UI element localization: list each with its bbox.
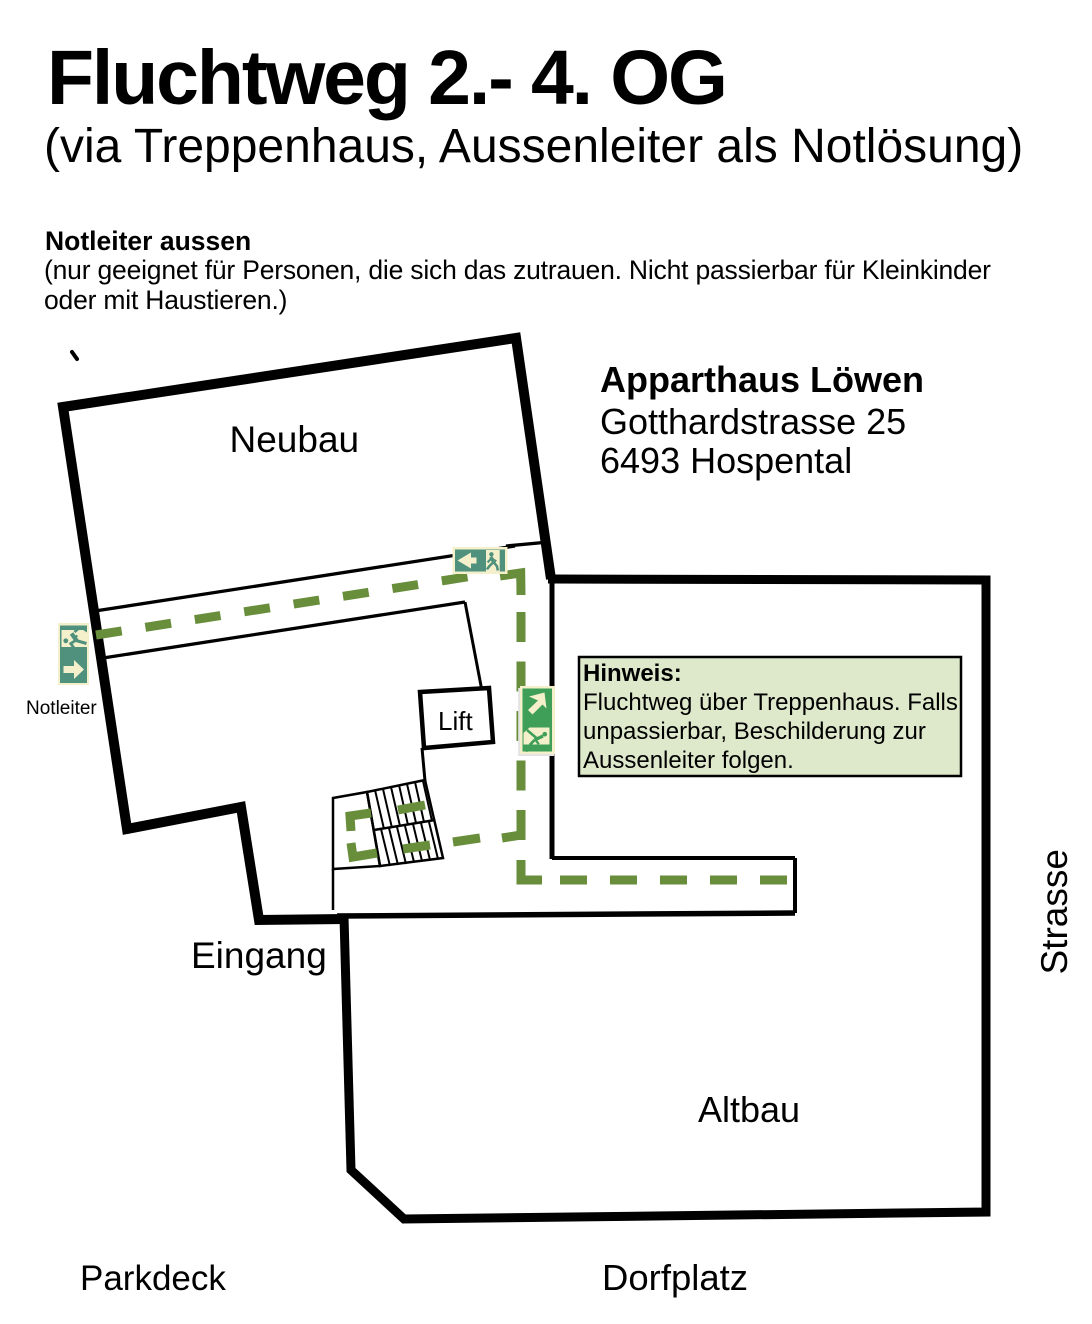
svg-text:Lift: Lift bbox=[438, 706, 473, 736]
svg-text:Notleiter: Notleiter bbox=[26, 698, 97, 719]
svg-text:Hinweis:: Hinweis: bbox=[583, 660, 682, 687]
svg-text:Altbau: Altbau bbox=[698, 1089, 800, 1130]
svg-text:Neubau: Neubau bbox=[230, 419, 360, 460]
svg-text:unpassierbar, Beschilderung zu: unpassierbar, Beschilderung zur bbox=[583, 718, 926, 745]
svg-text:Gotthardstrasse 25: Gotthardstrasse 25 bbox=[600, 401, 906, 442]
svg-text:Fluchtweg über Treppenhaus. Fa: Fluchtweg über Treppenhaus. Falls bbox=[583, 689, 958, 716]
svg-text:Dorfplatz: Dorfplatz bbox=[602, 1257, 748, 1298]
svg-text:Strasse: Strasse bbox=[1034, 849, 1075, 974]
svg-text:Parkdeck: Parkdeck bbox=[80, 1259, 226, 1298]
svg-text:6493 Hospental: 6493 Hospental bbox=[600, 440, 852, 481]
svg-text:Eingang: Eingang bbox=[191, 935, 327, 976]
svg-text:Apparthaus Löwen: Apparthaus Löwen bbox=[600, 359, 924, 400]
svg-text:Aussenleiter folgen.: Aussenleiter folgen. bbox=[583, 747, 794, 774]
